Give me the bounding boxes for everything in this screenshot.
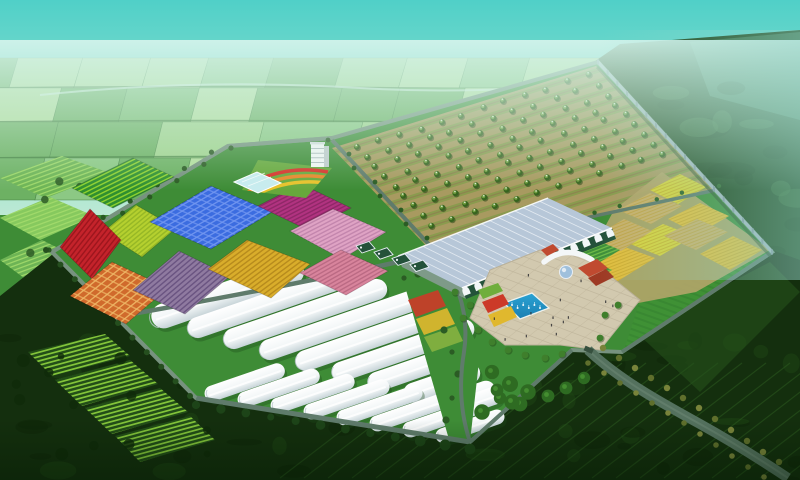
aerial-rendering: [0, 0, 800, 480]
scene-svg: [0, 0, 800, 480]
